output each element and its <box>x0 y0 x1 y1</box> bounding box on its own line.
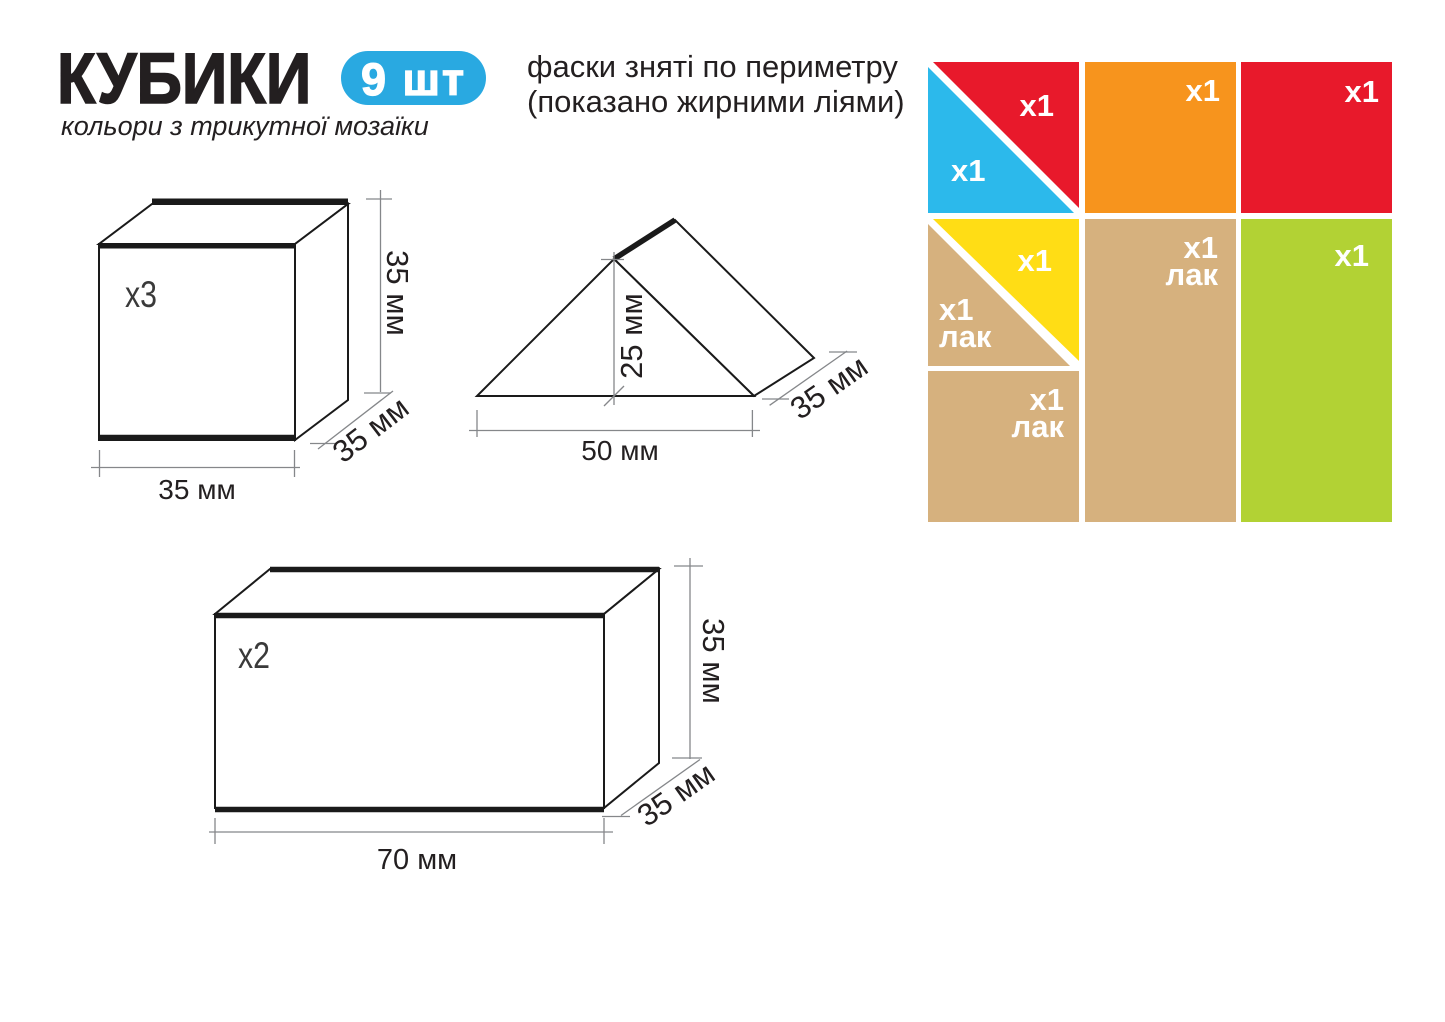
svg-text:35 мм: 35 мм <box>380 250 415 336</box>
svg-text:70 мм: 70 мм <box>377 844 457 876</box>
svg-text:x2: x2 <box>238 635 270 676</box>
svg-text:35 мм: 35 мм <box>158 474 235 505</box>
svg-text:x3: x3 <box>125 274 157 315</box>
svg-text:50 мм: 50 мм <box>581 435 658 466</box>
svg-text:35 мм: 35 мм <box>696 618 731 704</box>
svg-text:25 мм: 25 мм <box>614 293 649 379</box>
